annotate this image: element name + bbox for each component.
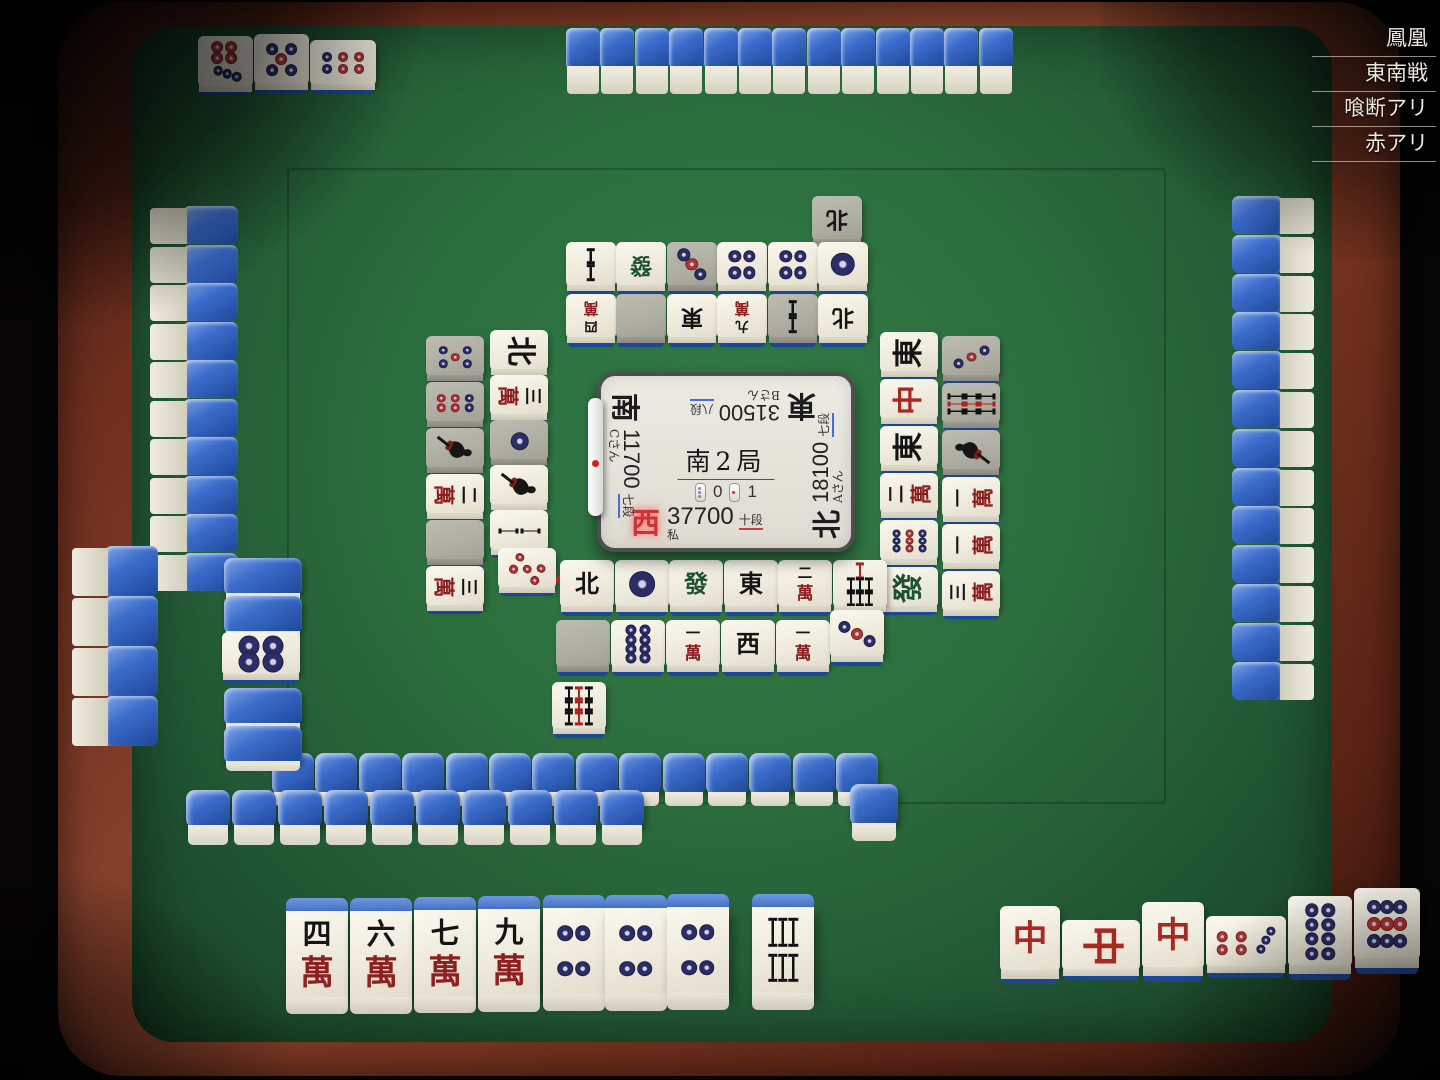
wall-tile-back [462, 790, 508, 848]
wall-tile-back [1232, 196, 1314, 236]
wall-tile-back [1232, 468, 1314, 508]
wall-tile-back [1232, 623, 1314, 663]
wall-tile-back [150, 322, 238, 362]
round-indicator: 南2局 [678, 442, 775, 480]
riichi-stick-red-dot [592, 460, 599, 467]
wall-tile-back [944, 28, 979, 94]
wall-tile-back [1232, 312, 1314, 352]
player-self-info: 西 37700 十段 私 [631, 502, 826, 544]
tile-2s [768, 294, 818, 349]
rule-label-0: 鳳凰 [1312, 22, 1436, 57]
rank-top: 八段 [690, 399, 714, 415]
tile-3p [667, 242, 717, 297]
tile-9s [552, 682, 606, 740]
wall-tile-back [1232, 274, 1314, 314]
ruleset-labels: 鳳凰東南戦喰断アリ赤アリ [1312, 22, 1436, 162]
honba-stick-counter-icon [730, 483, 741, 502]
tile-2m: 二萬 [880, 473, 938, 523]
tile-8p [1288, 896, 1352, 982]
tile-F: 發 [669, 560, 723, 618]
tile-1m: 一萬 [942, 524, 1000, 574]
score-self: 37700 [667, 503, 734, 531]
wall-tile-back [807, 28, 842, 94]
tile-blank [426, 520, 484, 570]
wall-tile-back [150, 283, 238, 323]
hand-tile-6m[interactable]: 六萬 [350, 898, 412, 1014]
wall-tile-back [554, 790, 600, 848]
name-left: Cさん [606, 429, 620, 518]
tile-4p [222, 632, 300, 686]
wall-tile-back [1232, 584, 1314, 624]
tile-3p [942, 336, 1000, 386]
tile-3m: 三萬 [942, 571, 1000, 621]
tile-5p [426, 336, 484, 386]
honba-count: 1 [748, 482, 757, 502]
tile-3m: 三萬 [490, 375, 548, 425]
tile-blank [556, 620, 610, 678]
wall-tile-back [706, 753, 750, 809]
tile-F: 發 [616, 242, 666, 297]
wall-tile-back [704, 28, 739, 94]
wall-tile-back [600, 790, 646, 848]
tile-C: 中 [1000, 906, 1060, 986]
wall-tile-back [1232, 390, 1314, 430]
wall-tile-back [1232, 351, 1314, 391]
wall-tile-back [738, 28, 773, 94]
wall-tile-back [72, 646, 158, 698]
wall-tile-back [749, 753, 793, 809]
tile-blank [616, 294, 666, 349]
tile-9m: 九萬 [717, 294, 767, 349]
wall-tile-back [150, 476, 238, 516]
wall-tile-back [232, 790, 278, 848]
player-right-info: 北 18100 七段 Aさん [804, 389, 850, 539]
wall-tile-back [1232, 429, 1314, 469]
tile-9p [880, 520, 938, 570]
wall-tile-back [72, 596, 158, 648]
name-self: 私 [667, 529, 763, 543]
seat-wind-right: 北 [813, 510, 842, 539]
rank-left: 七段 [618, 494, 634, 518]
tile-8p [611, 620, 665, 678]
tile-C: 中 [1062, 920, 1140, 982]
wall-tile-back [1232, 506, 1314, 546]
tile-C: 中 [1142, 902, 1204, 984]
tile-5p [254, 34, 309, 96]
wall-tile-back [1232, 545, 1314, 585]
tile-N: 北 [560, 560, 614, 618]
wall-tile-back [416, 790, 462, 848]
tile-1s [490, 465, 548, 515]
tile-7p [1206, 916, 1286, 980]
hand-tile-4p[interactable] [667, 894, 729, 1010]
wall-tile-back [150, 360, 238, 400]
wall-tile-back [1232, 235, 1314, 275]
center-score-panel: 南2局 0 1 西 37700 十段 私 南 11700 七段 [597, 372, 855, 552]
tile-7p [198, 36, 253, 98]
tile-1s [942, 430, 1000, 480]
tile-back [224, 726, 302, 774]
player-top-info: 東 31500 八段 Bさん [636, 383, 816, 429]
tile-3m: 三萬 [426, 566, 484, 616]
tile-1p [818, 242, 868, 297]
wall-tile-back [910, 28, 945, 94]
mahjong-table: 北發四萬東九萬北二萬三萬北三萬東中東二萬發一萬一萬三萬北發東二萬一萬西一萬四萬六… [0, 0, 1440, 1080]
tile-1p [615, 560, 669, 618]
rule-label-2: 喰断アリ [1312, 92, 1436, 127]
tile-1m: 一萬 [666, 620, 720, 678]
wall-tile-back [793, 753, 837, 809]
wall-tile-back [150, 245, 238, 285]
hand-tile-4m[interactable]: 四萬 [286, 898, 348, 1014]
tile-W: 西 [721, 620, 775, 678]
tile-9p [1354, 888, 1420, 976]
tile-4p [768, 242, 818, 297]
wall-tile-back [566, 28, 601, 94]
tile-1p [490, 420, 548, 470]
tile-N: 北 [818, 294, 868, 349]
stick-counters: 0 1 [695, 482, 757, 502]
hand-tile-9m[interactable]: 九萬 [478, 896, 540, 1012]
tile-1m: 一萬 [942, 477, 1000, 527]
riichi-1000-stick [588, 398, 603, 516]
wall-tile-back [508, 790, 554, 848]
rank-self: 十段 [739, 514, 763, 530]
tile-1s [426, 428, 484, 478]
tile-E: 東 [667, 294, 717, 349]
wall-tile-back [72, 546, 158, 598]
hand-tile-6s[interactable] [752, 894, 814, 1010]
riichi-stick-count: 0 [713, 482, 722, 502]
tile-4m: 四萬 [566, 294, 616, 349]
wall-tile-back [850, 784, 900, 844]
riichi-stick-counter-icon [695, 483, 706, 502]
wall-tile-back [150, 399, 238, 439]
wall-tile-back [278, 790, 324, 848]
wall-tile-back [186, 790, 232, 848]
tile-9s [942, 383, 1000, 433]
hand-tile-7m[interactable]: 七萬 [414, 897, 476, 1013]
wall-tile-back [669, 28, 704, 94]
tile-E: 東 [880, 332, 938, 382]
tile-3p [830, 610, 884, 668]
wall-tile-back [150, 437, 238, 477]
tile-6p [310, 40, 376, 96]
tile-6p [426, 382, 484, 432]
wall-tile-back [150, 514, 238, 554]
score-left: 11700 [619, 429, 644, 489]
hand-tile-4p[interactable] [543, 895, 605, 1011]
wall-tile-back [663, 753, 707, 809]
tile-E: 東 [880, 426, 938, 476]
tile-N: 北 [490, 330, 548, 380]
tile-1m: 一萬 [776, 620, 830, 678]
wall-tile-back [600, 28, 635, 94]
rule-label-3: 赤アリ [1312, 127, 1436, 162]
score-right: 18100 [808, 442, 833, 503]
tile-E: 東 [724, 560, 778, 618]
wall-tile-back [876, 28, 911, 94]
tile-F: 發 [880, 567, 938, 617]
wall-tile-back [772, 28, 807, 94]
wall-tile-back [150, 206, 238, 246]
tile-0p [498, 548, 556, 598]
rule-label-1: 東南戦 [1312, 57, 1436, 92]
tile-2m: 二萬 [778, 560, 832, 618]
hand-tile-4p[interactable] [605, 895, 667, 1011]
tile-2s [566, 242, 616, 297]
wall-tile-back [635, 28, 670, 94]
wall-tile-back [324, 790, 370, 848]
tile-4p [717, 242, 767, 297]
tile-C: 中 [880, 379, 938, 429]
score-top: 31500 [719, 400, 780, 425]
wall-tile-back [1232, 662, 1314, 702]
wall-tile-back [979, 28, 1014, 94]
name-top: Bさん [690, 387, 780, 401]
wall-tile-back [841, 28, 876, 94]
tile-2m: 二萬 [426, 474, 484, 524]
wall-tile-back [72, 696, 158, 748]
name-right: Aさん [832, 413, 846, 503]
wall-tile-back [370, 790, 416, 848]
